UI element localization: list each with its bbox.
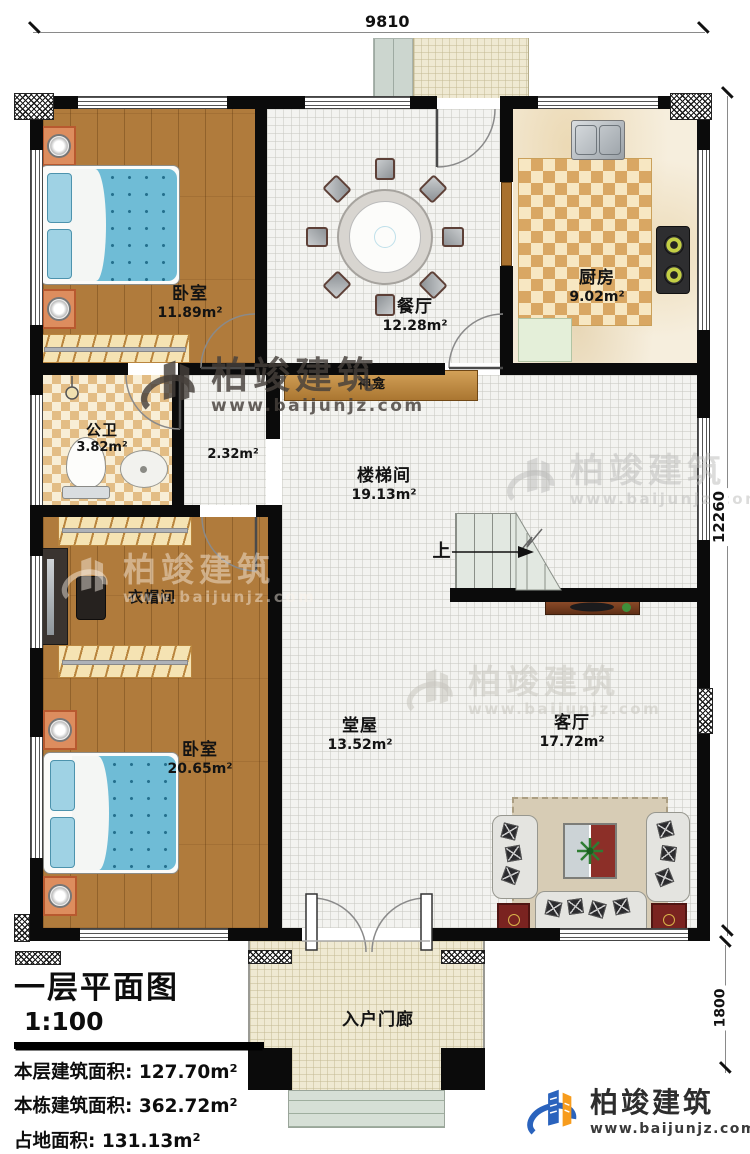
room-area: 20.65m² xyxy=(167,761,232,779)
info-label: 本层建筑面积: xyxy=(14,1062,132,1083)
room-area: 13.52m² xyxy=(327,737,392,755)
room-name: 客厅 xyxy=(539,713,604,734)
drawing-info-panel: 一层平面图 1:100 本层建筑面积: 127.70m² 本栋建筑面积: 362… xyxy=(14,962,264,1154)
drawing-title: 一层平面图 xyxy=(14,962,179,1007)
up-text: 上 xyxy=(433,541,452,564)
stairs-up-label: 上 xyxy=(433,541,452,564)
drawing-scale: 1:100 xyxy=(24,1007,104,1036)
company-logo-icon xyxy=(520,1082,582,1144)
room-area: 2.32m² xyxy=(207,447,258,463)
room-label-stairhall: 楼梯间 19.13m² xyxy=(351,466,416,505)
room-name: 衣帽间 xyxy=(128,588,176,607)
company-name: 柏竣建筑 xyxy=(590,1089,750,1117)
room-name: 堂屋 xyxy=(327,716,392,737)
info-row: 占地面积: 131.13m² xyxy=(14,1127,264,1153)
room-label-dining: 餐厅 12.28m² xyxy=(382,297,447,336)
info-value: 127.70m² xyxy=(139,1062,238,1083)
room-name: 神龛 xyxy=(358,377,386,393)
room-label-bathroom: 公卫 3.82m² xyxy=(76,421,127,456)
room-label-living: 客厅 17.72m² xyxy=(539,713,604,752)
room-label-bedroom-1: 卧室 11.89m² xyxy=(157,284,222,323)
room-label-bedroom-2: 卧室 20.65m² xyxy=(167,740,232,779)
dimension-line-top xyxy=(33,32,705,33)
info-row: 本栋建筑面积: 362.72m² xyxy=(14,1092,264,1118)
room-label-shrine: 神龛 xyxy=(358,377,386,393)
title-divider xyxy=(14,1042,264,1049)
room-name: 入户门廊 xyxy=(342,1010,414,1031)
info-label: 本栋建筑面积: xyxy=(14,1096,132,1117)
room-area: 3.82m² xyxy=(76,440,127,456)
dimension-porch-value: 1800 xyxy=(712,986,728,1031)
company-url: www.baijunjz.com xyxy=(590,1121,750,1137)
room-area: 19.13m² xyxy=(351,487,416,505)
room-name: 卧室 xyxy=(157,284,222,305)
company-logo: 柏竣建筑 www.baijunjz.com xyxy=(520,1082,750,1144)
dimension-top-value: 9810 xyxy=(362,12,413,31)
room-label-cloakroom: 衣帽间 xyxy=(128,588,176,607)
room-area: 9.02m² xyxy=(569,289,624,307)
info-value: 362.72m² xyxy=(139,1096,238,1117)
room-area: 12.28m² xyxy=(382,318,447,336)
info-label: 占地面积: xyxy=(14,1131,95,1152)
room-name: 餐厅 xyxy=(382,297,447,318)
floor-plan-canvas: 卧室 11.89m² 餐厅 12.28m² 厨房 9.02m² 公卫 3.82m… xyxy=(0,0,750,1154)
room-label-entry-porch: 入户门廊 xyxy=(342,1010,414,1031)
room-label-main-hall: 堂屋 13.52m² xyxy=(327,716,392,755)
room-label-kitchen: 厨房 9.02m² xyxy=(569,268,624,307)
shrine-area-label: 2.32m² xyxy=(207,447,258,463)
room-name: 公卫 xyxy=(76,421,127,440)
room-name: 卧室 xyxy=(167,740,232,761)
info-value: 131.13m² xyxy=(102,1131,201,1152)
room-name: 厨房 xyxy=(569,268,624,289)
dimension-right-value: 12260 xyxy=(710,488,728,546)
info-row: 本层建筑面积: 127.70m² xyxy=(14,1058,264,1084)
room-area: 17.72m² xyxy=(539,734,604,752)
room-name: 楼梯间 xyxy=(351,466,416,487)
room-area: 11.89m² xyxy=(157,305,222,323)
